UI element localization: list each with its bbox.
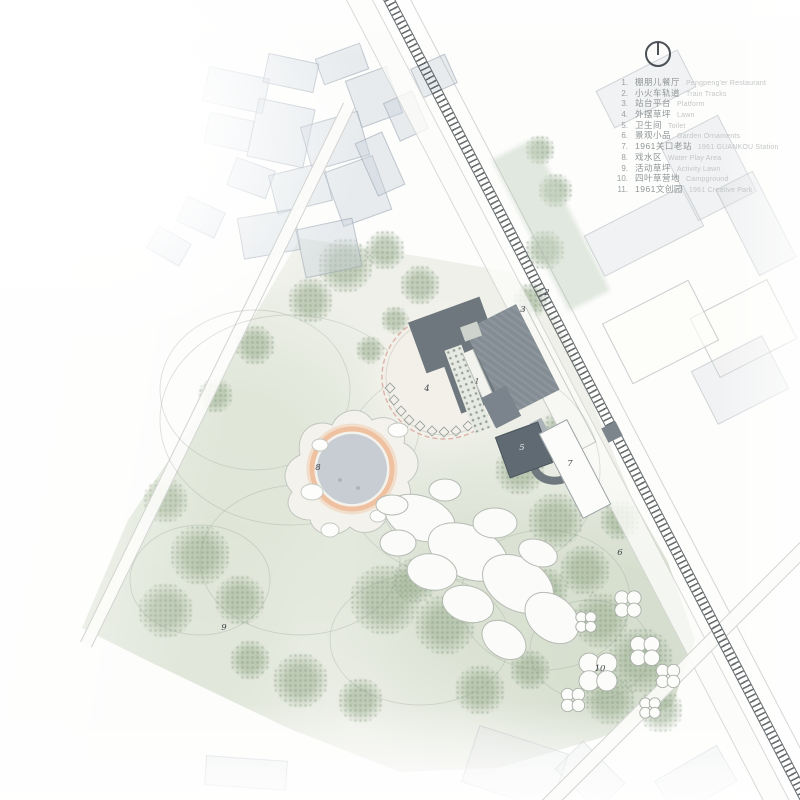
tree-cluster [356, 336, 384, 364]
context-building [203, 112, 255, 153]
tree-cluster [138, 583, 193, 638]
site-plan-canvas: 1 2 3 4 5 6 7 8 9 10 1.棚朋儿餐厅Pengpeng'er … [0, 0, 800, 800]
legend-number: 10. [612, 174, 628, 183]
tree-cluster [393, 558, 438, 603]
legend-label-en: 1961 GUANKOU Station [698, 144, 779, 151]
context-building [176, 195, 226, 238]
legend-item: 3.站台平台Platform [612, 97, 779, 108]
plan-label-4: 4 [424, 384, 429, 394]
tree-cluster [365, 230, 405, 270]
plan-label-8: 8 [315, 463, 320, 473]
legend-label-en: Platform [677, 101, 705, 108]
legend-number: 11. [612, 185, 628, 194]
legend: 1.棚朋儿餐厅Pengpeng'er Restaurant 2.小火车轨道Tra… [612, 76, 779, 194]
legend-label-en: Activity Lawn [677, 166, 720, 173]
context-building [654, 745, 737, 800]
tree-cluster [338, 678, 383, 723]
plan-label-5: 5 [519, 443, 524, 453]
legend-item: 9.活动草坪Activity Lawn [612, 162, 779, 173]
tree-cluster [455, 665, 505, 715]
legend-number: 1. [612, 78, 628, 87]
legend-label-zh: 1961文创园 [635, 183, 683, 195]
legend-item: 8.戏水区Water Play Area [612, 151, 779, 162]
plan-label-6: 6 [617, 548, 622, 558]
tree-cluster [273, 653, 328, 708]
north-arrow-icon [645, 41, 671, 67]
tree-cluster [400, 265, 440, 305]
legend-label-en: 1961 Creative Park [689, 187, 753, 194]
north-tick [657, 43, 659, 55]
legend-number: 6. [612, 131, 628, 140]
legend-item: 10.四叶草营地Campground [612, 172, 779, 183]
plan-label-1: 1 [475, 377, 480, 386]
tree-cluster [170, 525, 230, 585]
context-building [204, 755, 288, 791]
legend-item: 4.外摆草坪Lawn [612, 108, 779, 119]
plan-label-7: 7 [567, 459, 572, 469]
tree-cluster [560, 545, 610, 595]
tree-cluster [510, 650, 550, 690]
tree-cluster [415, 595, 475, 655]
tree-cluster [381, 306, 409, 334]
tree-cluster [523, 568, 568, 613]
tree-cluster [288, 278, 333, 323]
legend-number: 9. [612, 164, 628, 173]
legend-number: 2. [612, 89, 628, 98]
legend-label-en: Water Play Area [668, 155, 721, 162]
legend-number: 5. [612, 121, 628, 130]
plan-label-10: 10 [595, 664, 606, 674]
legend-number: 7. [612, 142, 628, 151]
legend-number: 8. [612, 153, 628, 162]
tree-cluster [230, 640, 270, 680]
plan-label-3: 3 [520, 305, 525, 315]
legend-label-en: Train Tracks [686, 91, 727, 98]
legend-item: 5.卫生间Toilet [612, 119, 779, 130]
plan-label-2: 2 [544, 288, 549, 298]
legend-item: 7.1961关口老站1961 GUANKOU Station [612, 140, 779, 151]
tree-cluster [215, 575, 265, 625]
legend-item: 1.棚朋儿餐厅Pengpeng'er Restaurant [612, 76, 779, 87]
legend-item: 2.小火车轨道Train Tracks [612, 87, 779, 98]
context-building [146, 225, 192, 267]
context-building [262, 53, 319, 93]
plan-label-9: 9 [221, 623, 226, 633]
legend-number: 4. [612, 110, 628, 119]
legend-label-en: Campground [686, 176, 728, 183]
legend-number: 3. [612, 99, 628, 108]
legend-item: 11.1961文创园1961 Creative Park [612, 183, 779, 194]
legend-label-en: Pengpeng'er Restaurant [686, 80, 766, 87]
context-building [584, 185, 705, 277]
legend-label-en: Lawn [677, 112, 695, 119]
legend-item: 6.景观小品Garden Ornaments [612, 129, 779, 140]
